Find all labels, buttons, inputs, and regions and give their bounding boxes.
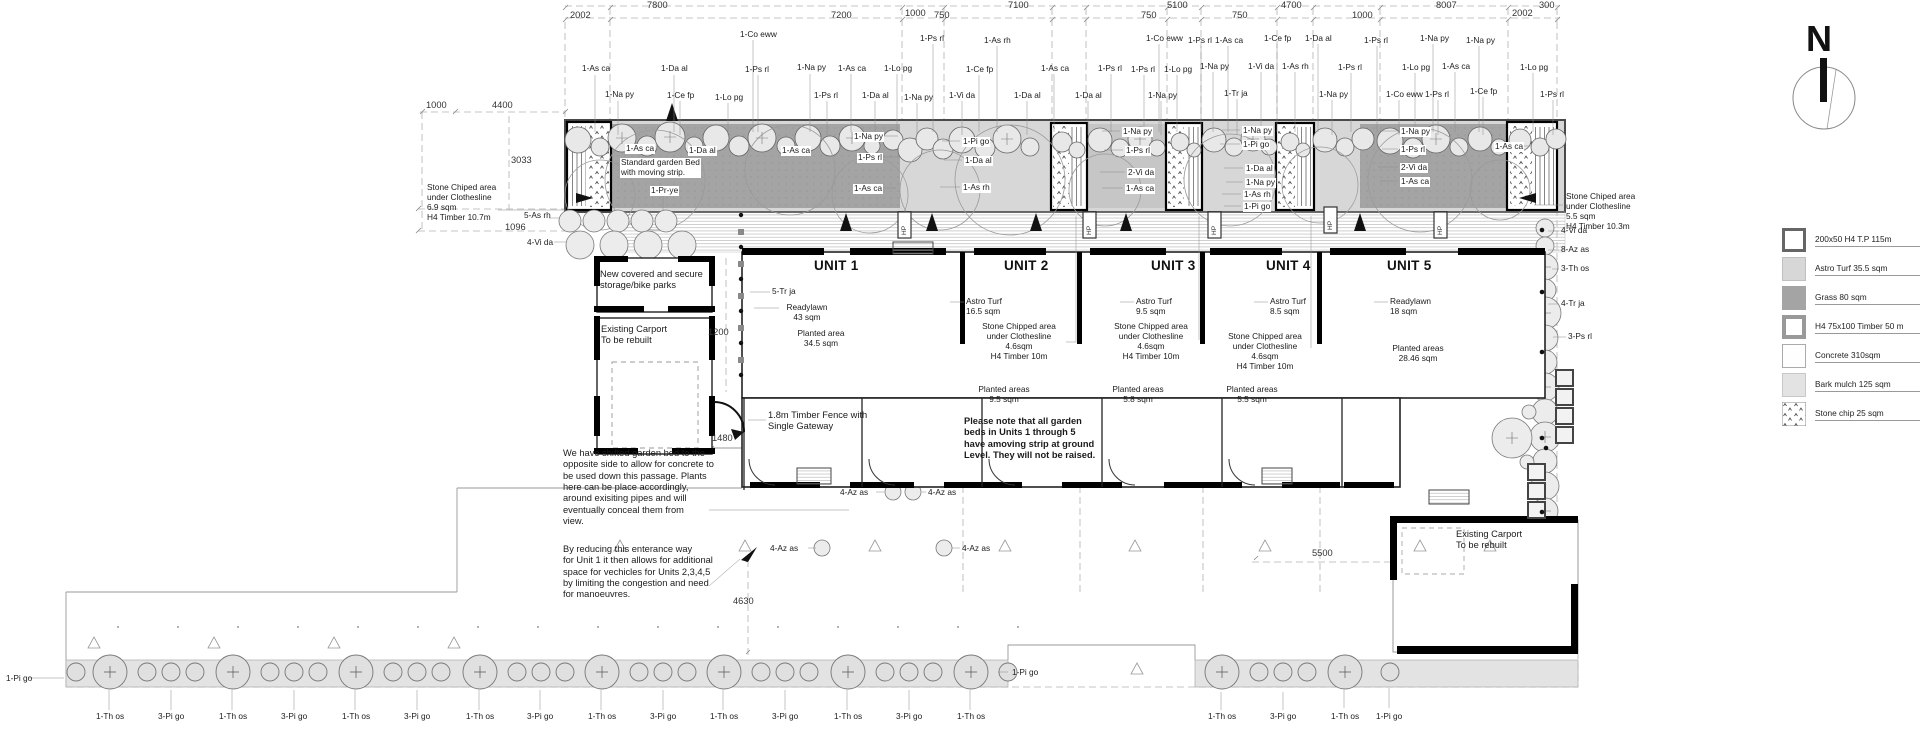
legend-item: Stone chip 25 sqm	[1782, 402, 1920, 426]
unit-title: UNIT 5	[1387, 258, 1432, 273]
dim-label: 4630	[733, 596, 754, 606]
dim-label: 750	[934, 10, 950, 20]
clothesline-note: Stone Chiped area under Clothesline 5.5 …	[1566, 192, 1635, 232]
unit-planted-note: Planted areas 28.46 sqm	[1384, 344, 1452, 364]
bed-plant-label: 1-Ps rl	[857, 153, 883, 163]
plant-label: 1-Ps rl	[1098, 64, 1122, 74]
unit-surface-note: Readylawn 43 sqm	[777, 303, 837, 323]
plant-label: 1-Da al	[1014, 91, 1041, 101]
bed-plant-label: 1-Da al	[688, 146, 717, 156]
dim-label: 1000	[426, 100, 447, 110]
dim-label: 300	[1539, 0, 1555, 10]
plant-label: 1-As ca	[838, 64, 866, 74]
plant-label: 1-Ps rl	[1131, 65, 1155, 75]
bottom-plant-label: 3-Pi go	[404, 712, 430, 722]
dim-label: 1000	[905, 8, 926, 18]
bottom-plant-label: 1-Pi go	[6, 674, 32, 684]
plant-label: 1-Lo pg	[1520, 63, 1548, 73]
az-plant-label: 4-Az as	[962, 544, 990, 554]
grass-swatch	[1782, 286, 1806, 310]
plant-label: 1-Na py	[1148, 91, 1177, 101]
bed-plant-label: 1-As rh	[1243, 190, 1272, 200]
unit-plant-label: 5-Tr ja	[772, 287, 796, 297]
plant-label: 1-Na py	[1420, 34, 1449, 44]
plant-label: 1-Ps rl	[745, 65, 769, 75]
plant-label: 1-Ps rl	[814, 91, 838, 101]
astro-turf-swatch	[1782, 257, 1806, 281]
bottom-plant-label: 3-Pi go	[527, 712, 553, 722]
site-plan: 2002 7800 7200 1000 750 7100 750 5100 75…	[0, 0, 1920, 751]
bottom-plant-label: 1-Th os	[1208, 712, 1236, 722]
bottom-plant-label: 1-Th os	[588, 712, 616, 722]
standard-bed-label: Standard garden Bed with moving strip.	[620, 158, 701, 178]
legend-item: Bark mulch 125 sqm	[1782, 373, 1920, 397]
entrance-note: By reducing this enterance way for Unit …	[563, 544, 717, 601]
right-plant-label: 3-Th os	[1561, 264, 1589, 274]
bottom-plant-label: 3-Pi go	[281, 712, 307, 722]
bed-plant-label: 1-Pi go	[962, 137, 990, 147]
bottom-plant-label: 1-Th os	[466, 712, 494, 722]
plant-label: 1-Ps rl	[920, 34, 944, 44]
gateway-arc	[714, 402, 744, 432]
dim-label: 1000	[1352, 10, 1373, 20]
plant-label: 1-As rh	[984, 36, 1011, 46]
garden-beds-note: Please note that all garden beds in Unit…	[964, 416, 1114, 461]
bed-plant-label: 1-Na py	[1400, 127, 1431, 137]
bed-plant-label: 2-Vi da	[1400, 163, 1428, 173]
plant-label: 1-Ps rl	[1425, 90, 1449, 100]
plant-label: 1-Vi da	[1248, 62, 1274, 72]
bottom-plant-label: 1-Th os	[219, 712, 247, 722]
bark-mulch-swatch	[1782, 373, 1806, 397]
plant-label: 1-Lo pg	[715, 93, 743, 103]
bottom-plant-label: 3-Pi go	[158, 712, 184, 722]
fence-note: 1.8m Timber Fence with Single Gateway	[768, 410, 867, 433]
plant-label: 1-As ca	[1442, 62, 1470, 72]
plant-label: 1-Ce fp	[966, 65, 993, 75]
plant-label: 1-Vi da	[949, 91, 975, 101]
bottom-plant-label: 1-Th os	[96, 712, 124, 722]
legend-label: Stone chip 25 sqm	[1815, 408, 1920, 421]
legend-label: Concrete 310sqm	[1815, 350, 1920, 363]
bottom-plant-label: 1-Pi go	[1376, 712, 1402, 722]
unit-surface-note: Astro Turf 16.5 sqm	[966, 297, 1002, 317]
unit-title: UNIT 4	[1266, 258, 1311, 273]
legend-label: Bark mulch 125 sqm	[1815, 379, 1920, 392]
plant-label: 1-Co eww	[740, 30, 777, 40]
legend-item: Grass 80 sqm	[1782, 286, 1920, 310]
plant-label: 1-Ps rl	[1540, 90, 1564, 100]
bed-plant-label: 1-Na py	[853, 132, 884, 142]
plant-label: 1-Da al	[1075, 91, 1102, 101]
bottom-plant-label: 1-Th os	[957, 712, 985, 722]
unit-planted-note: Planted areas 9.5 sqm	[974, 385, 1034, 405]
hp-marker: HP	[1086, 226, 1093, 235]
bed-plant-label: 1-Na py	[1242, 126, 1273, 136]
dim-label: 1200	[708, 327, 729, 337]
dim-label: 7800	[647, 0, 668, 10]
bottom-plant-label: 1-Th os	[834, 712, 862, 722]
bed-plant-label: 1-Na py	[1122, 127, 1153, 137]
storage-note: New covered and secure storage/bike park…	[600, 269, 703, 292]
unit-planted-note: Planted areas 5.8 sqm	[1108, 385, 1168, 405]
dim-label: 2002	[1512, 8, 1533, 18]
unit-clothesline-note: Stone Chipped area under Clothesline 4.6…	[972, 322, 1066, 362]
driveway-strip	[66, 655, 1578, 689]
unit-surface-note: Astro Turf 9.5 sqm	[1136, 297, 1172, 317]
bed-plant-label: 1-Da al	[964, 156, 993, 166]
dim-label: 4400	[492, 100, 513, 110]
dim-label: 2002	[570, 10, 591, 20]
dim-label: 5500	[1312, 548, 1333, 558]
shifted-bed-note: We have shifted garden bed to the opposi…	[563, 448, 715, 527]
clothesline-note: Stone Chiped area under Clothesline 6.9 …	[427, 183, 496, 223]
hp-marker: HP	[1211, 226, 1218, 235]
bed-plant-label: 1-Pr-ye	[650, 186, 679, 196]
plant-label: 1-Ce fp	[667, 91, 694, 101]
unit-title: UNIT 1	[814, 258, 859, 273]
legend-label: H4 75x100 Timber 50 m	[1815, 321, 1920, 334]
unit-clothesline-note: Stone Chipped area under Clothesline 4.6…	[1104, 322, 1198, 362]
dim-label: 750	[1232, 10, 1248, 20]
plant-label: 1-Co eww	[1386, 90, 1423, 100]
bottom-plant-label: 1-Th os	[1331, 712, 1359, 722]
plant-label: 1-As ca	[582, 64, 610, 74]
hp-marker: HP	[901, 226, 908, 235]
plant-label: 1-Ce fp	[1264, 34, 1291, 44]
legend-item: 200x50 H4 T.P 115m	[1782, 228, 1920, 252]
timber-tp-swatch	[1782, 228, 1806, 252]
plant-label: 1-Ps rl	[1188, 36, 1212, 46]
plant-label: 1-Da al	[862, 91, 889, 101]
bottom-plant-label: 3-Pi go	[772, 712, 798, 722]
north-letter: N	[1806, 18, 1832, 60]
plant-label: 1-As rh	[1282, 62, 1309, 72]
plant-label: 1-Ps rl	[1364, 36, 1388, 46]
legend-label: 200x50 H4 T.P 115m	[1815, 234, 1920, 247]
stone-chip-swatch	[1782, 402, 1806, 426]
plant-label: 1-Na py	[797, 63, 826, 73]
right-plant-label: 4-Tr ja	[1561, 299, 1585, 309]
plant-label: 1-Da al	[661, 64, 688, 74]
plant-label: 1-Lo pg	[1164, 65, 1192, 75]
legend-label: Grass 80 sqm	[1815, 292, 1920, 305]
side-plant-label: 5-As rh	[524, 211, 551, 221]
plant-label: 1-Da al	[1305, 34, 1332, 44]
plant-label: 1-Na py	[1466, 36, 1495, 46]
plant-label: 1-Na py	[1319, 90, 1348, 100]
unit-surface-note: Astro Turf 8.5 sqm	[1270, 297, 1306, 317]
plant-label: 1-Na py	[1200, 62, 1229, 72]
plant-label: 1-Co eww	[1146, 34, 1183, 44]
hp-marker: HP	[1437, 226, 1444, 235]
plant-label: 1-Ce fp	[1470, 87, 1497, 97]
carport-note: Existing Carport To be rebuilt	[1456, 529, 1522, 552]
az-plant-label: 4-Az as	[770, 544, 798, 554]
plant-label: 1-Lo pg	[1402, 63, 1430, 73]
right-plant-label: 8-Az as	[1561, 245, 1589, 255]
unit-title: UNIT 2	[1004, 258, 1049, 273]
side-plant-label: 4-Vi da	[527, 238, 553, 248]
north-arrow	[1793, 58, 1855, 129]
bed-plant-label: 1-Pi go	[1243, 202, 1271, 212]
timber-swatch	[1782, 315, 1806, 339]
plant-label: 1-Lo pg	[884, 64, 912, 74]
dim-label: 1480	[712, 433, 733, 443]
carport-note: Existing Carport To be rebuilt	[601, 324, 667, 347]
bottom-plant-label: 1-Th os	[710, 712, 738, 722]
unit-title: UNIT 3	[1151, 258, 1196, 273]
bed-plant-label: 1-As ca	[853, 184, 883, 194]
unit-clothesline-note: Stone Chipped area under Clothesline 4.6…	[1218, 332, 1312, 372]
dim-label: 5100	[1167, 0, 1188, 10]
plant-label: 1-Na py	[605, 90, 634, 100]
bed-plant-label: 1-As ca	[1400, 177, 1430, 187]
plant-label: 1-Na py	[904, 93, 933, 103]
az-plant-label: 4-Az as	[840, 488, 868, 498]
bed-plant-label: 1-Ps rl	[1400, 145, 1426, 155]
legend-item: Astro Turf 35.5 sqm	[1782, 257, 1920, 281]
az-plant-label: 4-Az as	[928, 488, 956, 498]
bed-plant-label: 1-As ca	[1125, 184, 1155, 194]
bed-plant-label: 1-As ca	[1494, 142, 1524, 152]
legend-item: H4 75x100 Timber 50 m	[1782, 315, 1920, 339]
dim-label: 3033	[511, 155, 532, 165]
dim-label: 7100	[1008, 0, 1029, 10]
bottom-plant-label: 1-Pi go	[1012, 668, 1038, 678]
bottom-plant-label: 3-Pi go	[1270, 712, 1296, 722]
dim-label: 4700	[1281, 0, 1302, 10]
concrete-swatch	[1782, 344, 1806, 368]
bed-plant-label: 1-Da al	[1245, 164, 1274, 174]
dim-label: 750	[1141, 10, 1157, 20]
dim-label: 8007	[1436, 0, 1457, 10]
bed-plant-label: 2-Vi da	[1127, 168, 1155, 178]
bed-plant-label: 1-As ca	[625, 144, 655, 154]
dim-label: 7200	[831, 10, 852, 20]
bed-plant-label: 1-As rh	[962, 183, 991, 193]
bottom-plant-label: 1-Th os	[342, 712, 370, 722]
hp-marker: HP	[1327, 221, 1334, 230]
bed-plant-label: 1-Pi go	[1242, 140, 1270, 150]
unit-surface-note: Readylawn 18 sqm	[1390, 297, 1431, 317]
dim-label: 1096	[505, 222, 526, 232]
plan-drawing	[0, 0, 1920, 751]
plant-label: 1-As ca	[1041, 64, 1069, 74]
unit-planted-note: Planted areas 5.5 sqm	[1222, 385, 1282, 405]
bed-plant-label: 1-As ca	[781, 146, 811, 156]
right-plant-label: 3-Ps rl	[1568, 332, 1592, 342]
bed-plant-label: 1-Ps rl	[1125, 146, 1151, 156]
bottom-plant-label: 3-Pi go	[896, 712, 922, 722]
legend: 200x50 H4 T.P 115m Astro Turf 35.5 sqm G…	[1782, 228, 1920, 431]
concrete-triangles	[88, 540, 1496, 674]
bottom-plant-label: 3-Pi go	[650, 712, 676, 722]
plant-label: 1-As ca	[1215, 36, 1243, 46]
legend-label: Astro Turf 35.5 sqm	[1815, 263, 1920, 276]
plant-label: 1-Ps rl	[1338, 63, 1362, 73]
bed-plant-label: 1-Na py	[1245, 178, 1276, 188]
legend-item: Concrete 310sqm	[1782, 344, 1920, 368]
plant-label: 1-Tr ja	[1224, 89, 1248, 99]
unit-planted-note: Planted area 34.5 sqm	[788, 329, 854, 349]
